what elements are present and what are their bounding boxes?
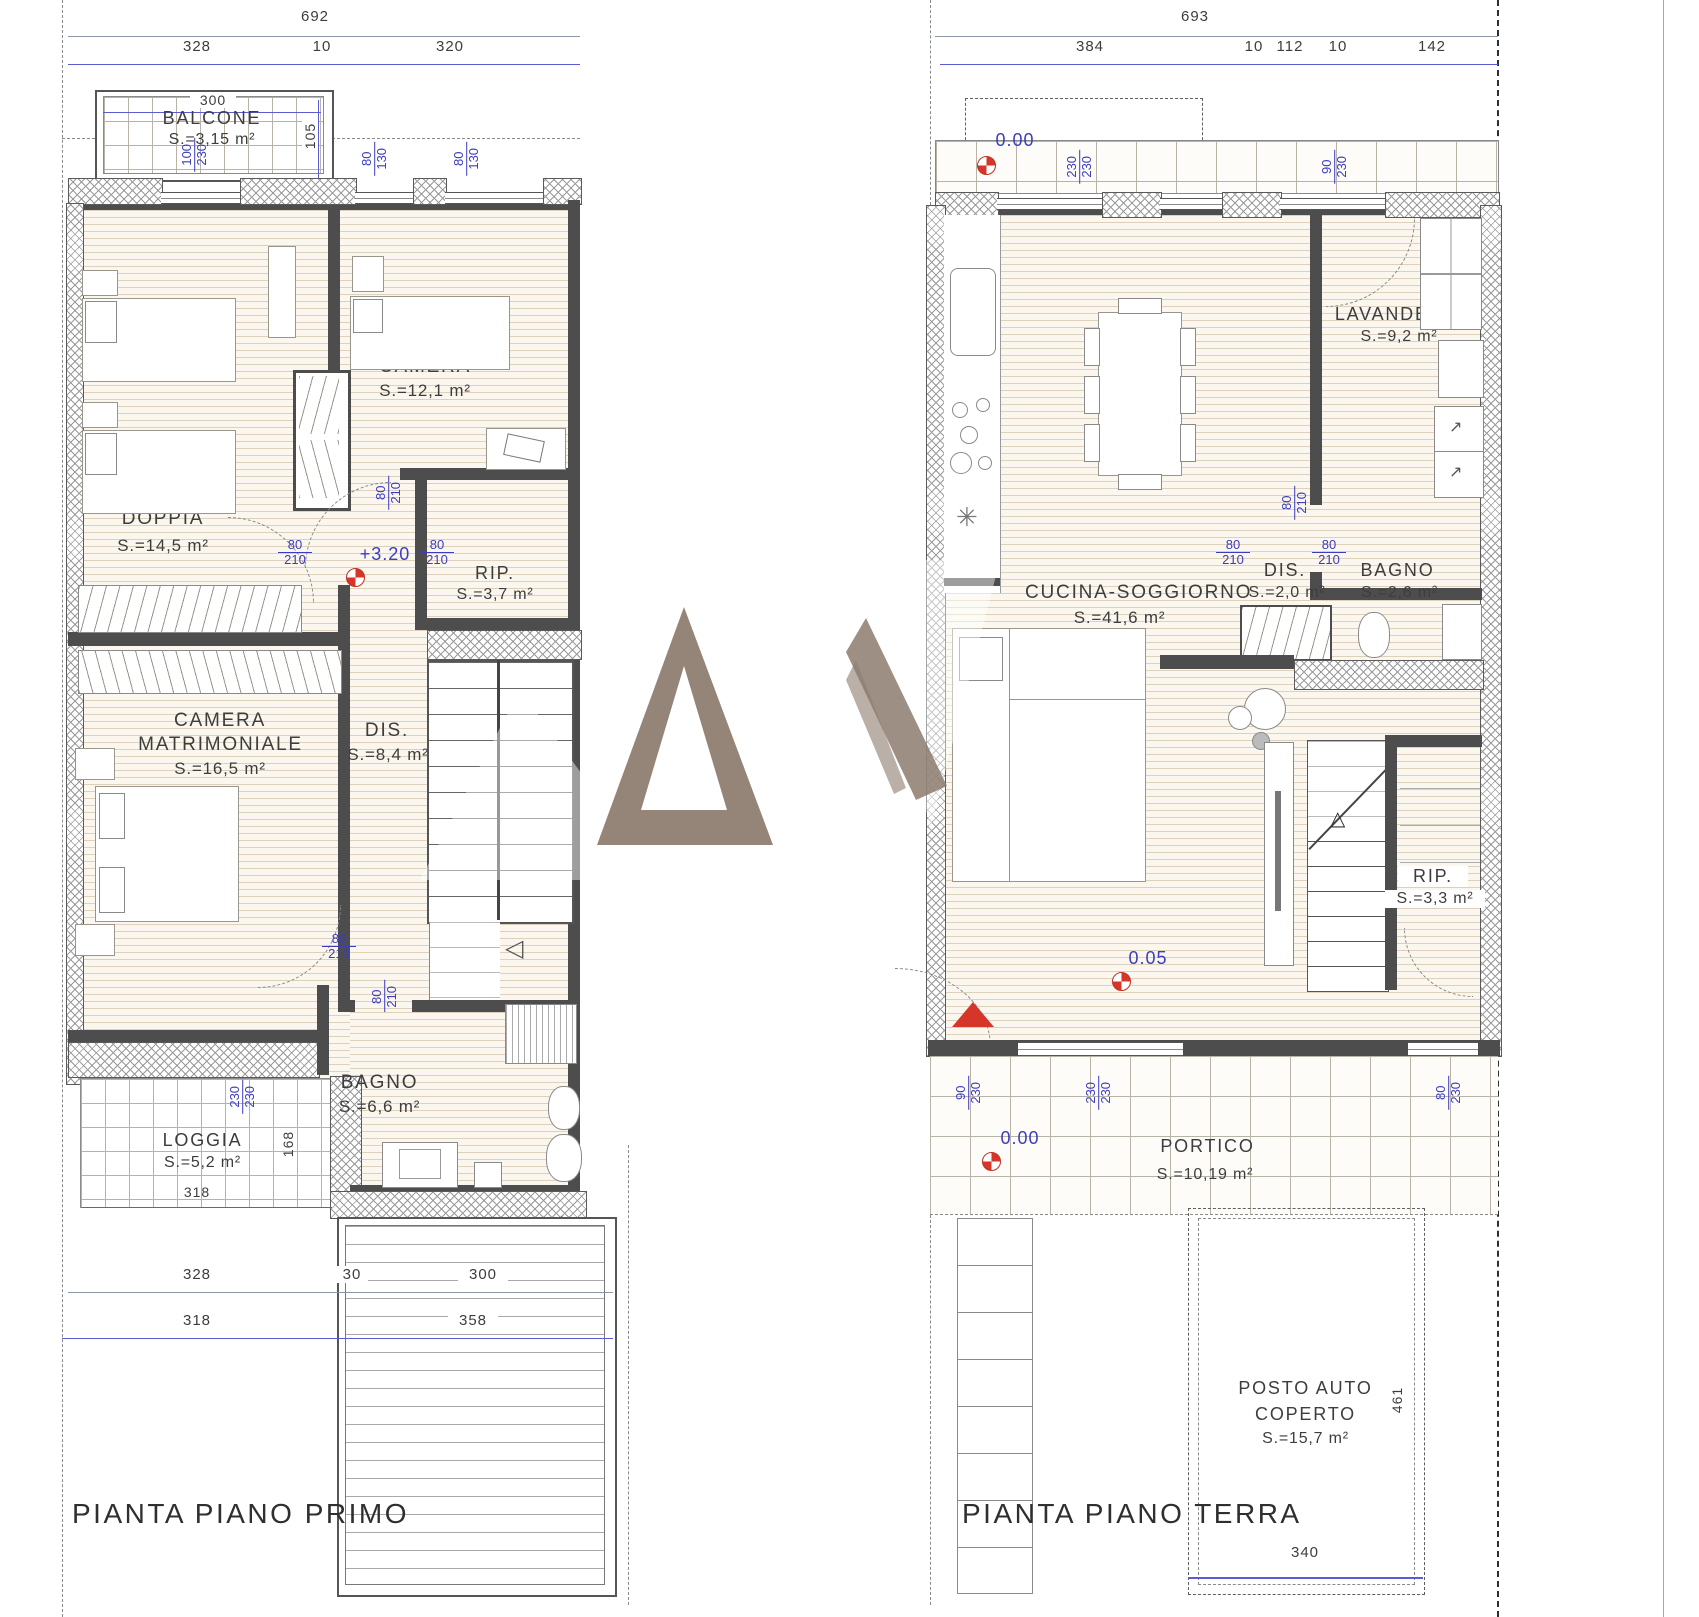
window-top-1 [161, 192, 240, 204]
dim-den: 230 [1080, 150, 1095, 184]
dim-den: 210 [389, 476, 404, 510]
property-line-deck [628, 1145, 629, 1605]
wall-hatch-rtop-2 [1102, 192, 1162, 218]
level-marker-ground [977, 156, 996, 175]
watermark-triangle [597, 607, 773, 845]
dim-den: 210 [1216, 552, 1250, 567]
toilet-right [1358, 612, 1390, 658]
dining-table [1098, 312, 1182, 476]
sink-right [1442, 604, 1482, 660]
room-camera-area: S.=12,1 m² [350, 381, 500, 401]
dim-line-row2-left [68, 64, 580, 65]
laundry-sink [1438, 340, 1484, 398]
window-rtop-3 [1280, 198, 1385, 210]
dim-line-balcony-v [318, 100, 319, 178]
dim-seg3-left: 320 [415, 38, 485, 55]
dim-balcony-width: 300 [190, 92, 236, 108]
dim-seg5-right: 142 [1398, 38, 1466, 55]
wall-rip-right-top [1385, 735, 1482, 747]
dim-seg2-left: 10 [308, 38, 336, 55]
dim-line-total-left [68, 36, 580, 37]
desk-doppia [268, 246, 296, 338]
dim-90-230-portico: 90230 [954, 1076, 984, 1110]
dim-num: 80 [360, 142, 374, 176]
window-top-3 [445, 192, 543, 204]
dim-line-b2-left [62, 1338, 613, 1339]
chair [1118, 474, 1162, 490]
wardrobe-hatch-a [299, 376, 339, 434]
room-posto-label1: POSTO AUTO [1238, 1378, 1373, 1399]
dim-num: 80 [370, 980, 384, 1014]
bed-single-2 [82, 430, 236, 514]
dim-seg3-right: 112 [1262, 38, 1318, 55]
room-posto-label2: COPERTO [1238, 1404, 1373, 1425]
property-line-mid-bottom [930, 1215, 931, 1605]
room-portico-label: PORTICO [1140, 1136, 1275, 1157]
kitchen-hob [948, 396, 996, 482]
door-dim-rip: 80210 [420, 538, 454, 568]
level-text-entry: 0.05 [1118, 948, 1178, 969]
room-doppia-area: S.=14,5 m² [88, 536, 238, 556]
nightstand-3 [352, 256, 384, 292]
room-cucina-label: CUCINA-SOGGIORNO [1025, 582, 1215, 604]
wall-hatch-stairs-top [427, 630, 582, 660]
wardrobe-dis-right [1240, 605, 1332, 661]
window-dim-230-230-loggia: 230230 [228, 1080, 258, 1114]
level-marker-primo [346, 568, 365, 587]
door-dim-bagno: 80210 [370, 980, 400, 1014]
hob-burner [952, 402, 968, 418]
wall-hatch-top-2 [240, 178, 357, 205]
dim-posto-height: 461 [1389, 1378, 1405, 1422]
chair [1180, 376, 1196, 414]
room-rip-area: S.=3,7 m² [440, 586, 550, 604]
dim-den: 230 [243, 1080, 258, 1114]
entrance-arrow [952, 1002, 994, 1027]
staircase-lower-steps [429, 922, 500, 1002]
sofa-line [1009, 699, 1145, 700]
room-rip-right-label: RIP. [1398, 866, 1468, 887]
chair [1084, 424, 1100, 462]
wall-lavanderia-divider [1310, 215, 1322, 505]
dim-loggia-width: 318 [172, 1184, 222, 1200]
wall-hatch-bagno-bottom [330, 1191, 587, 1219]
room-rip-label: RIP. [455, 563, 535, 584]
level-marker-entry [1112, 972, 1131, 991]
plan-title-primo: PIANTA PIANO PRIMO [72, 1498, 409, 1530]
hob-burner [950, 452, 972, 474]
wall-bagno-stub [345, 1000, 355, 1012]
bed-double [95, 786, 239, 922]
stairs-upper-dashed [1308, 741, 1388, 837]
pillow [85, 301, 117, 343]
window-top-2 [355, 192, 413, 204]
dim-posto-width: 340 [1280, 1544, 1330, 1561]
dim-den: 230 [1449, 1076, 1464, 1110]
room-bagno-right-area: S.=2,6 m² [1352, 584, 1447, 602]
window-bottom-right [1018, 1042, 1183, 1056]
room-matrimoniale-label2: MATRIMONIALE [118, 734, 323, 756]
dim-den: 230 [969, 1076, 984, 1110]
room-rip-right-area: S.=3,3 m² [1385, 890, 1485, 908]
level-text-ground: 0.00 [985, 130, 1045, 151]
washer-arrow-icon: ↗ [1449, 417, 1462, 437]
window-dim-90-230-top: 90230 [1320, 150, 1350, 184]
property-line-left [62, 0, 63, 1617]
dim-den: 230 [195, 138, 210, 172]
dim-b1b-left: 30 [336, 1266, 368, 1283]
dim-seg4-right: 10 [1324, 38, 1352, 55]
wall-ext-left-right-plan [926, 205, 946, 1057]
dim-num: 80 [452, 142, 466, 176]
sink-basin [399, 1149, 441, 1179]
dim-den: 210 [385, 980, 400, 1014]
room-loggia-label: LOGGIA [140, 1130, 265, 1151]
wardrobe-strip-matrimoniale [78, 650, 342, 694]
staircase-primo [427, 660, 574, 924]
washer-arrow-icon: ↗ [1449, 462, 1462, 482]
wall-hatch-top-3 [413, 178, 447, 205]
plan-title-terra: PIANTA PIANO TERRA [962, 1498, 1302, 1530]
stairs-up-arrow: △ [1330, 806, 1345, 831]
door-dim-doppia: 80210 [278, 538, 312, 568]
pillow [99, 867, 125, 913]
door-dim-camera: 80210 [374, 476, 404, 510]
property-line-mid-top [930, 0, 931, 205]
door-bottom-right [1408, 1042, 1478, 1056]
freezer-icon: ✳ [956, 502, 978, 533]
desk-camera [486, 428, 566, 470]
window-rtop-2 [1160, 198, 1222, 210]
room-dis-area: S.=8,4 m² [338, 745, 438, 765]
bed-single-3 [350, 296, 510, 370]
room-dis-right-label: DIS. [1255, 560, 1315, 581]
dim-den: 130 [375, 142, 390, 176]
dim-line-loggia [82, 1207, 332, 1208]
chair [1084, 376, 1100, 414]
dim-230-230-portico: 230230 [1084, 1076, 1114, 1110]
dim-total-right: 693 [1160, 8, 1230, 25]
nightstand-2 [82, 402, 118, 428]
room-posto-area: S.=15,7 m² [1238, 1430, 1373, 1448]
door-dim-matrimoniale: 80210 [322, 932, 356, 962]
dim-num: 80 [420, 538, 454, 552]
dim-num: 80 [1312, 538, 1346, 552]
wall-hatch-matrimoniale-bottom [68, 1042, 320, 1078]
kitchen-counter-end [944, 578, 1000, 586]
wall-rip-right-v [1385, 735, 1397, 990]
wall-hatch-corridor-right [1294, 660, 1484, 690]
dryer-machine: ↗ [1434, 451, 1484, 498]
wall-hatch-rtop-3 [1222, 192, 1282, 218]
dim-den: 210 [278, 552, 312, 567]
dim-b2b-left: 358 [448, 1312, 498, 1329]
wall-corridor-right [1160, 655, 1294, 669]
sofa-pillow [959, 637, 1003, 681]
kitchen-sink [950, 268, 996, 356]
floor-plan-canvas: 692 328 10 320 300 105 BALCONE S.=3,15 m… [0, 0, 1699, 1617]
dim-b1c-left: 300 [458, 1266, 508, 1283]
hob-burner [978, 456, 992, 470]
tv-cabinet [1264, 742, 1294, 966]
dim-total-left: 692 [280, 8, 350, 25]
wall-corner-v [317, 985, 329, 1075]
room-bagno-area: S.=6,6 m² [322, 1097, 437, 1117]
window-dim-80-130-b: 80130 [452, 142, 482, 176]
dim-num: 80 [278, 538, 312, 552]
chair [1084, 328, 1100, 366]
dim-b1a-left: 328 [172, 1266, 222, 1283]
window-dim-230-230-top: 230230 [1065, 150, 1095, 184]
window-rtop-1 [997, 198, 1102, 210]
toilet [546, 1134, 582, 1182]
room-matrimoniale-area: S.=16,5 m² [130, 759, 310, 779]
dim-balcony-height: 105 [302, 116, 318, 156]
dim-line-posto [1188, 1577, 1423, 1579]
sink-cabinet [382, 1142, 458, 1188]
room-balcone-area: S.=3,15 m² [137, 131, 287, 149]
window-dim-80-130-a: 80130 [360, 142, 390, 176]
dim-seg1-left: 328 [162, 38, 232, 55]
room-bagno-right-label: BAGNO [1355, 560, 1440, 581]
dim-num: 230 [1065, 150, 1079, 184]
dim-num: 80 [322, 932, 356, 946]
wardrobe-hatch-b [299, 440, 339, 498]
wall-camera-divider [328, 210, 340, 375]
laptop [503, 433, 545, 462]
room-bagno-label: BAGNO [322, 1072, 437, 1094]
watermark-band-2 [846, 660, 906, 794]
staircase-rail [497, 660, 500, 920]
washing-machine: ↗ [1434, 406, 1484, 453]
chair [1180, 424, 1196, 462]
stairs-lower-steps [1308, 841, 1388, 991]
pillow [85, 433, 117, 475]
hob-burner [976, 398, 990, 412]
room-cucina-area: S.=41,6 m² [1062, 608, 1177, 628]
laundry-cabinets [1420, 218, 1482, 330]
room-dis-label: DIS. [352, 720, 422, 742]
dim-num: 100 [180, 138, 194, 172]
bed-single-1 [82, 298, 236, 382]
wall-ext-right-right-plan [1480, 205, 1502, 1057]
level-text-primo: +3.20 [348, 544, 422, 565]
room-matrimoniale-label1: CAMERA [130, 710, 310, 732]
room-portico-area: S.=10,19 m² [1125, 1166, 1285, 1184]
dim-num: 90 [1320, 150, 1334, 184]
room-loggia-area: S.=5,2 m² [140, 1154, 265, 1172]
dim-num: 80 [1216, 538, 1250, 552]
level-text-portico: 0.00 [990, 1128, 1050, 1149]
dim-den: 210 [420, 552, 454, 567]
wall-matrimoniale-bottom [68, 1030, 318, 1042]
bidet [548, 1086, 580, 1130]
wall-doppia-matrimoniale [68, 632, 348, 646]
dim-den: 130 [467, 142, 482, 176]
nightstand-5 [75, 924, 115, 956]
door-dim-dis-right: 80210 [1216, 538, 1250, 568]
hob-burner [960, 426, 978, 444]
door-dim-lavanderia: 80210 [1280, 486, 1310, 520]
dim-den: 210 [322, 946, 356, 961]
pillow [353, 299, 383, 333]
dim-num: 230 [1084, 1076, 1098, 1110]
sheet-edge-line [1663, 0, 1664, 1617]
dim-num: 80 [1434, 1076, 1448, 1110]
level-marker-portico [982, 1152, 1001, 1171]
dim-line-b1-left [68, 1292, 613, 1293]
pillow [99, 793, 125, 839]
dim-line-total-right [935, 36, 1498, 37]
tv-screen [1275, 791, 1281, 911]
dim-num: 80 [374, 476, 388, 510]
bathtub [505, 1004, 577, 1064]
dim-b2a-left: 318 [172, 1312, 222, 1329]
dim-num: 230 [228, 1080, 242, 1114]
plant-circle-2 [1228, 706, 1252, 730]
window-dim-100-230: 100230 [180, 138, 210, 172]
stairs-direction-arrow: ◁ [505, 934, 523, 963]
wall-hatch-top-1 [68, 178, 163, 205]
door-dim-bagno-right: 80210 [1312, 538, 1346, 568]
chair [1118, 298, 1162, 314]
room-balcone-label: BALCONE [137, 108, 287, 129]
wall-rip-bottom [415, 618, 580, 630]
dim-num: 90 [954, 1076, 968, 1110]
room-dis-right-area: S.=2,0 m² [1242, 584, 1332, 602]
nightstand-1 [82, 270, 118, 296]
bath-column [474, 1162, 502, 1188]
dim-den: 210 [1312, 552, 1346, 567]
dim-80-230-portico: 80230 [1434, 1076, 1464, 1110]
dim-den: 230 [1099, 1076, 1114, 1110]
chair [1180, 328, 1196, 366]
dim-den: 210 [1295, 486, 1310, 520]
dim-den: 230 [1335, 150, 1350, 184]
sofa-line [1009, 629, 1010, 881]
dim-num: 80 [1280, 486, 1294, 520]
dim-seg1-right: 384 [1055, 38, 1125, 55]
dim-loggia-height: 168 [280, 1124, 296, 1164]
garden-path-steps [957, 1218, 1033, 1594]
sofa [952, 628, 1146, 882]
dim-line-row2-right [940, 64, 1498, 65]
nightstand-4 [75, 748, 115, 780]
